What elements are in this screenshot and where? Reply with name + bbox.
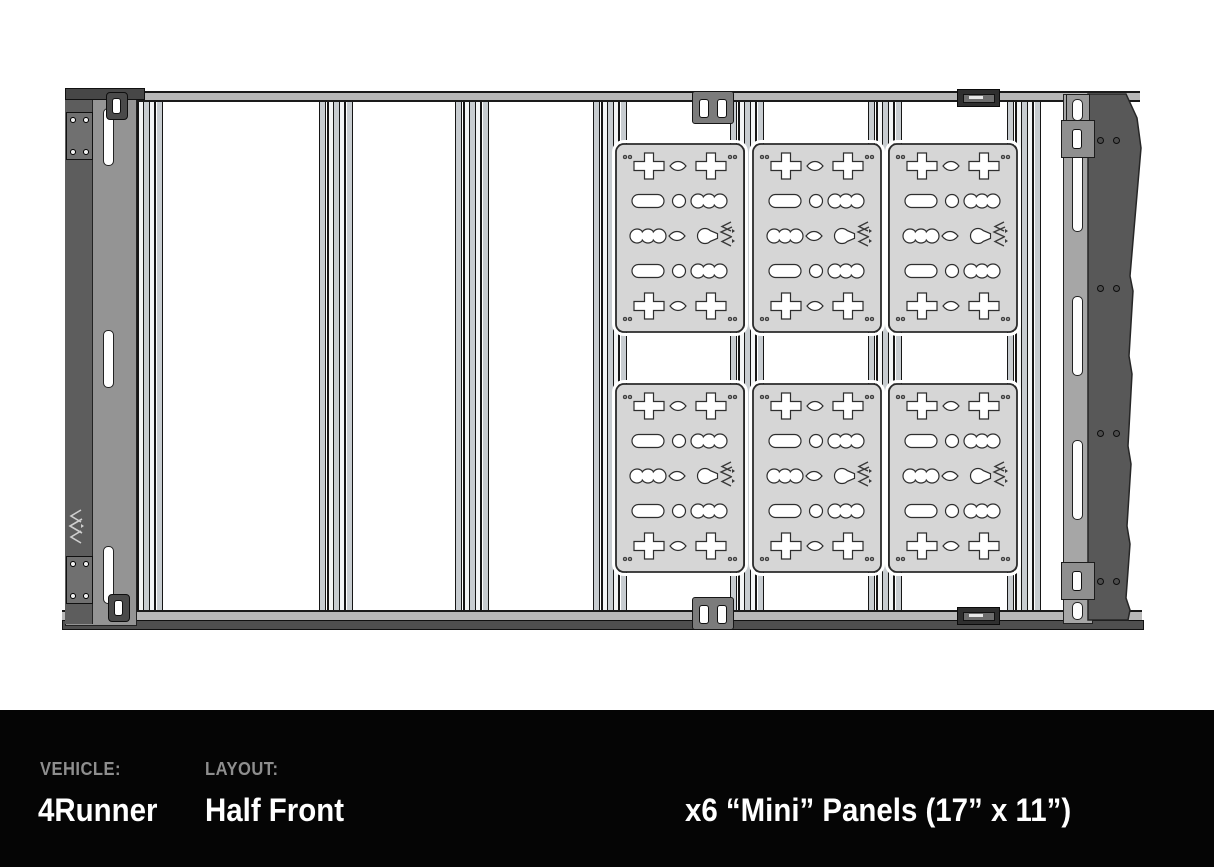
tie-down-hook bbox=[106, 92, 128, 120]
rack-diagram bbox=[0, 0, 1214, 710]
rail-clamp-bracket bbox=[1061, 120, 1095, 158]
rack-layout-sheet: VEHICLE: 4Runner LAYOUT: Half Front x6 “… bbox=[0, 0, 1214, 867]
rack-front-rail-end-cap bbox=[65, 88, 145, 100]
panels-summary: x6 “Mini” Panels (17” x 11”) bbox=[685, 792, 1071, 829]
layout-value: Half Front bbox=[205, 792, 344, 829]
layout-label: LAYOUT: bbox=[205, 759, 278, 780]
rail-clamp-bracket bbox=[1061, 562, 1095, 600]
crossbar-bracket bbox=[692, 597, 734, 630]
deflector-hole bbox=[1113, 285, 1120, 292]
mounting-plate bbox=[66, 112, 93, 160]
deflector-hole bbox=[1113, 578, 1120, 585]
deflector-hole bbox=[1097, 137, 1104, 144]
side-rail-slot bbox=[1072, 296, 1083, 376]
mini-panel bbox=[615, 143, 745, 333]
deflector-hole bbox=[1097, 430, 1104, 437]
side-rail-slot bbox=[1072, 152, 1083, 232]
mini-panel bbox=[752, 383, 882, 573]
mini-panel bbox=[752, 143, 882, 333]
crossbar bbox=[455, 98, 489, 612]
mini-panel bbox=[888, 383, 1018, 573]
side-rail-slot bbox=[1072, 99, 1083, 121]
mini-panel bbox=[615, 383, 745, 573]
side-rail-slot bbox=[1072, 440, 1083, 520]
vehicle-value: 4Runner bbox=[38, 792, 157, 829]
side-rail-slot bbox=[1072, 602, 1083, 620]
side-rail-slot bbox=[103, 330, 114, 388]
crossbar bbox=[319, 98, 353, 612]
spec-footer: VEHICLE: 4Runner LAYOUT: Half Front x6 “… bbox=[0, 710, 1214, 867]
deflector-hole bbox=[1113, 137, 1120, 144]
mini-panel bbox=[888, 143, 1018, 333]
deflector-hole bbox=[1097, 285, 1104, 292]
wind-deflector-side-plate bbox=[1086, 86, 1146, 628]
tie-down-hook bbox=[108, 594, 130, 622]
deflector-hole bbox=[1097, 578, 1104, 585]
mounting-plate bbox=[66, 556, 93, 604]
rail-logo-icon bbox=[66, 506, 86, 548]
tie-down-plate bbox=[957, 607, 1000, 625]
vehicle-label: VEHICLE: bbox=[40, 759, 121, 780]
tie-down-plate bbox=[957, 89, 1000, 107]
deflector-hole bbox=[1113, 430, 1120, 437]
crossbar-bracket bbox=[692, 91, 734, 124]
